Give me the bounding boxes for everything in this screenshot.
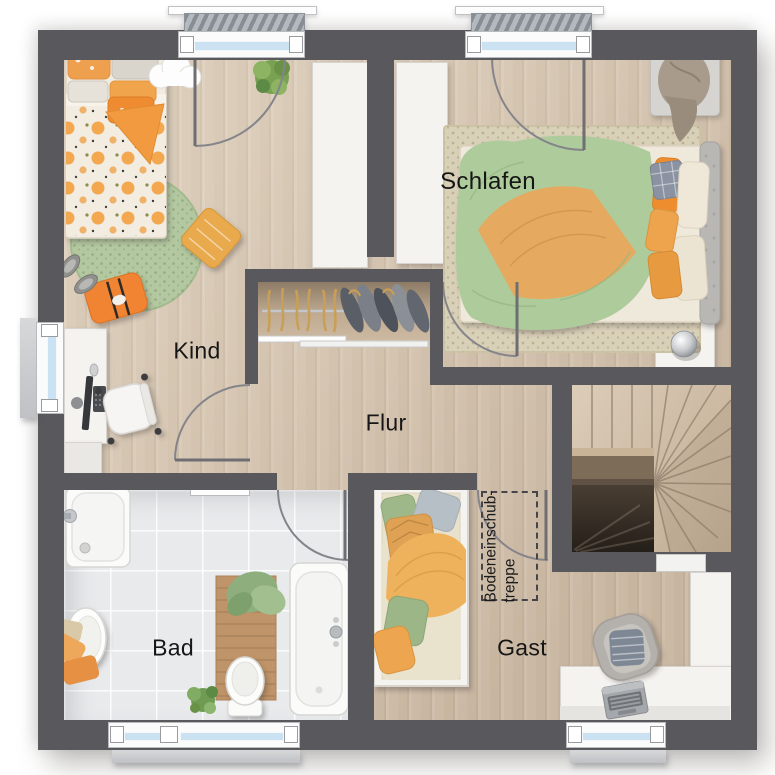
wall-closet-right bbox=[430, 269, 443, 377]
wall-closet-top bbox=[245, 269, 443, 282]
wall-bad-top bbox=[64, 473, 277, 490]
room-label-kind: Kind bbox=[173, 338, 220, 365]
wall-schlafen-south bbox=[430, 367, 731, 385]
wall-closet-left bbox=[245, 269, 258, 384]
wall-kind-schlafen bbox=[367, 60, 394, 257]
wall-top bbox=[38, 30, 757, 60]
wall-gast-top bbox=[374, 473, 477, 490]
nightstand-schlafen bbox=[655, 320, 715, 370]
attic-ladder-label-line1: Bodeneinschub- bbox=[483, 491, 502, 603]
floor-plan: Kind Schlafen Flur Bad Gast Bodeneinschu… bbox=[0, 0, 775, 775]
room-label-gast: Gast bbox=[497, 635, 547, 662]
wardrobe-gast bbox=[690, 572, 732, 668]
wardrobe-kind bbox=[312, 62, 368, 268]
wall-right bbox=[731, 30, 757, 750]
wardrobe-schlafen bbox=[396, 62, 448, 264]
stair-wall-niche bbox=[656, 554, 706, 572]
room-label-flur: Flur bbox=[366, 410, 407, 437]
closet-floor bbox=[258, 282, 430, 340]
room-label-bad: Bad bbox=[152, 635, 194, 662]
wall-stair-west bbox=[552, 378, 572, 558]
wall-bad-gast bbox=[348, 473, 374, 720]
room-label-schlafen: Schlafen bbox=[440, 168, 536, 196]
desk-gast-edge bbox=[560, 706, 730, 720]
attic-ladder-annotation: Bodeneinschub- treppe bbox=[481, 491, 538, 601]
bathroom-tile-floor bbox=[64, 490, 348, 724]
stairwell-floor bbox=[572, 385, 731, 552]
attic-ladder-label-line2: treppe bbox=[501, 491, 520, 603]
desk-kind-return bbox=[64, 442, 102, 474]
desk-kind bbox=[64, 328, 107, 444]
